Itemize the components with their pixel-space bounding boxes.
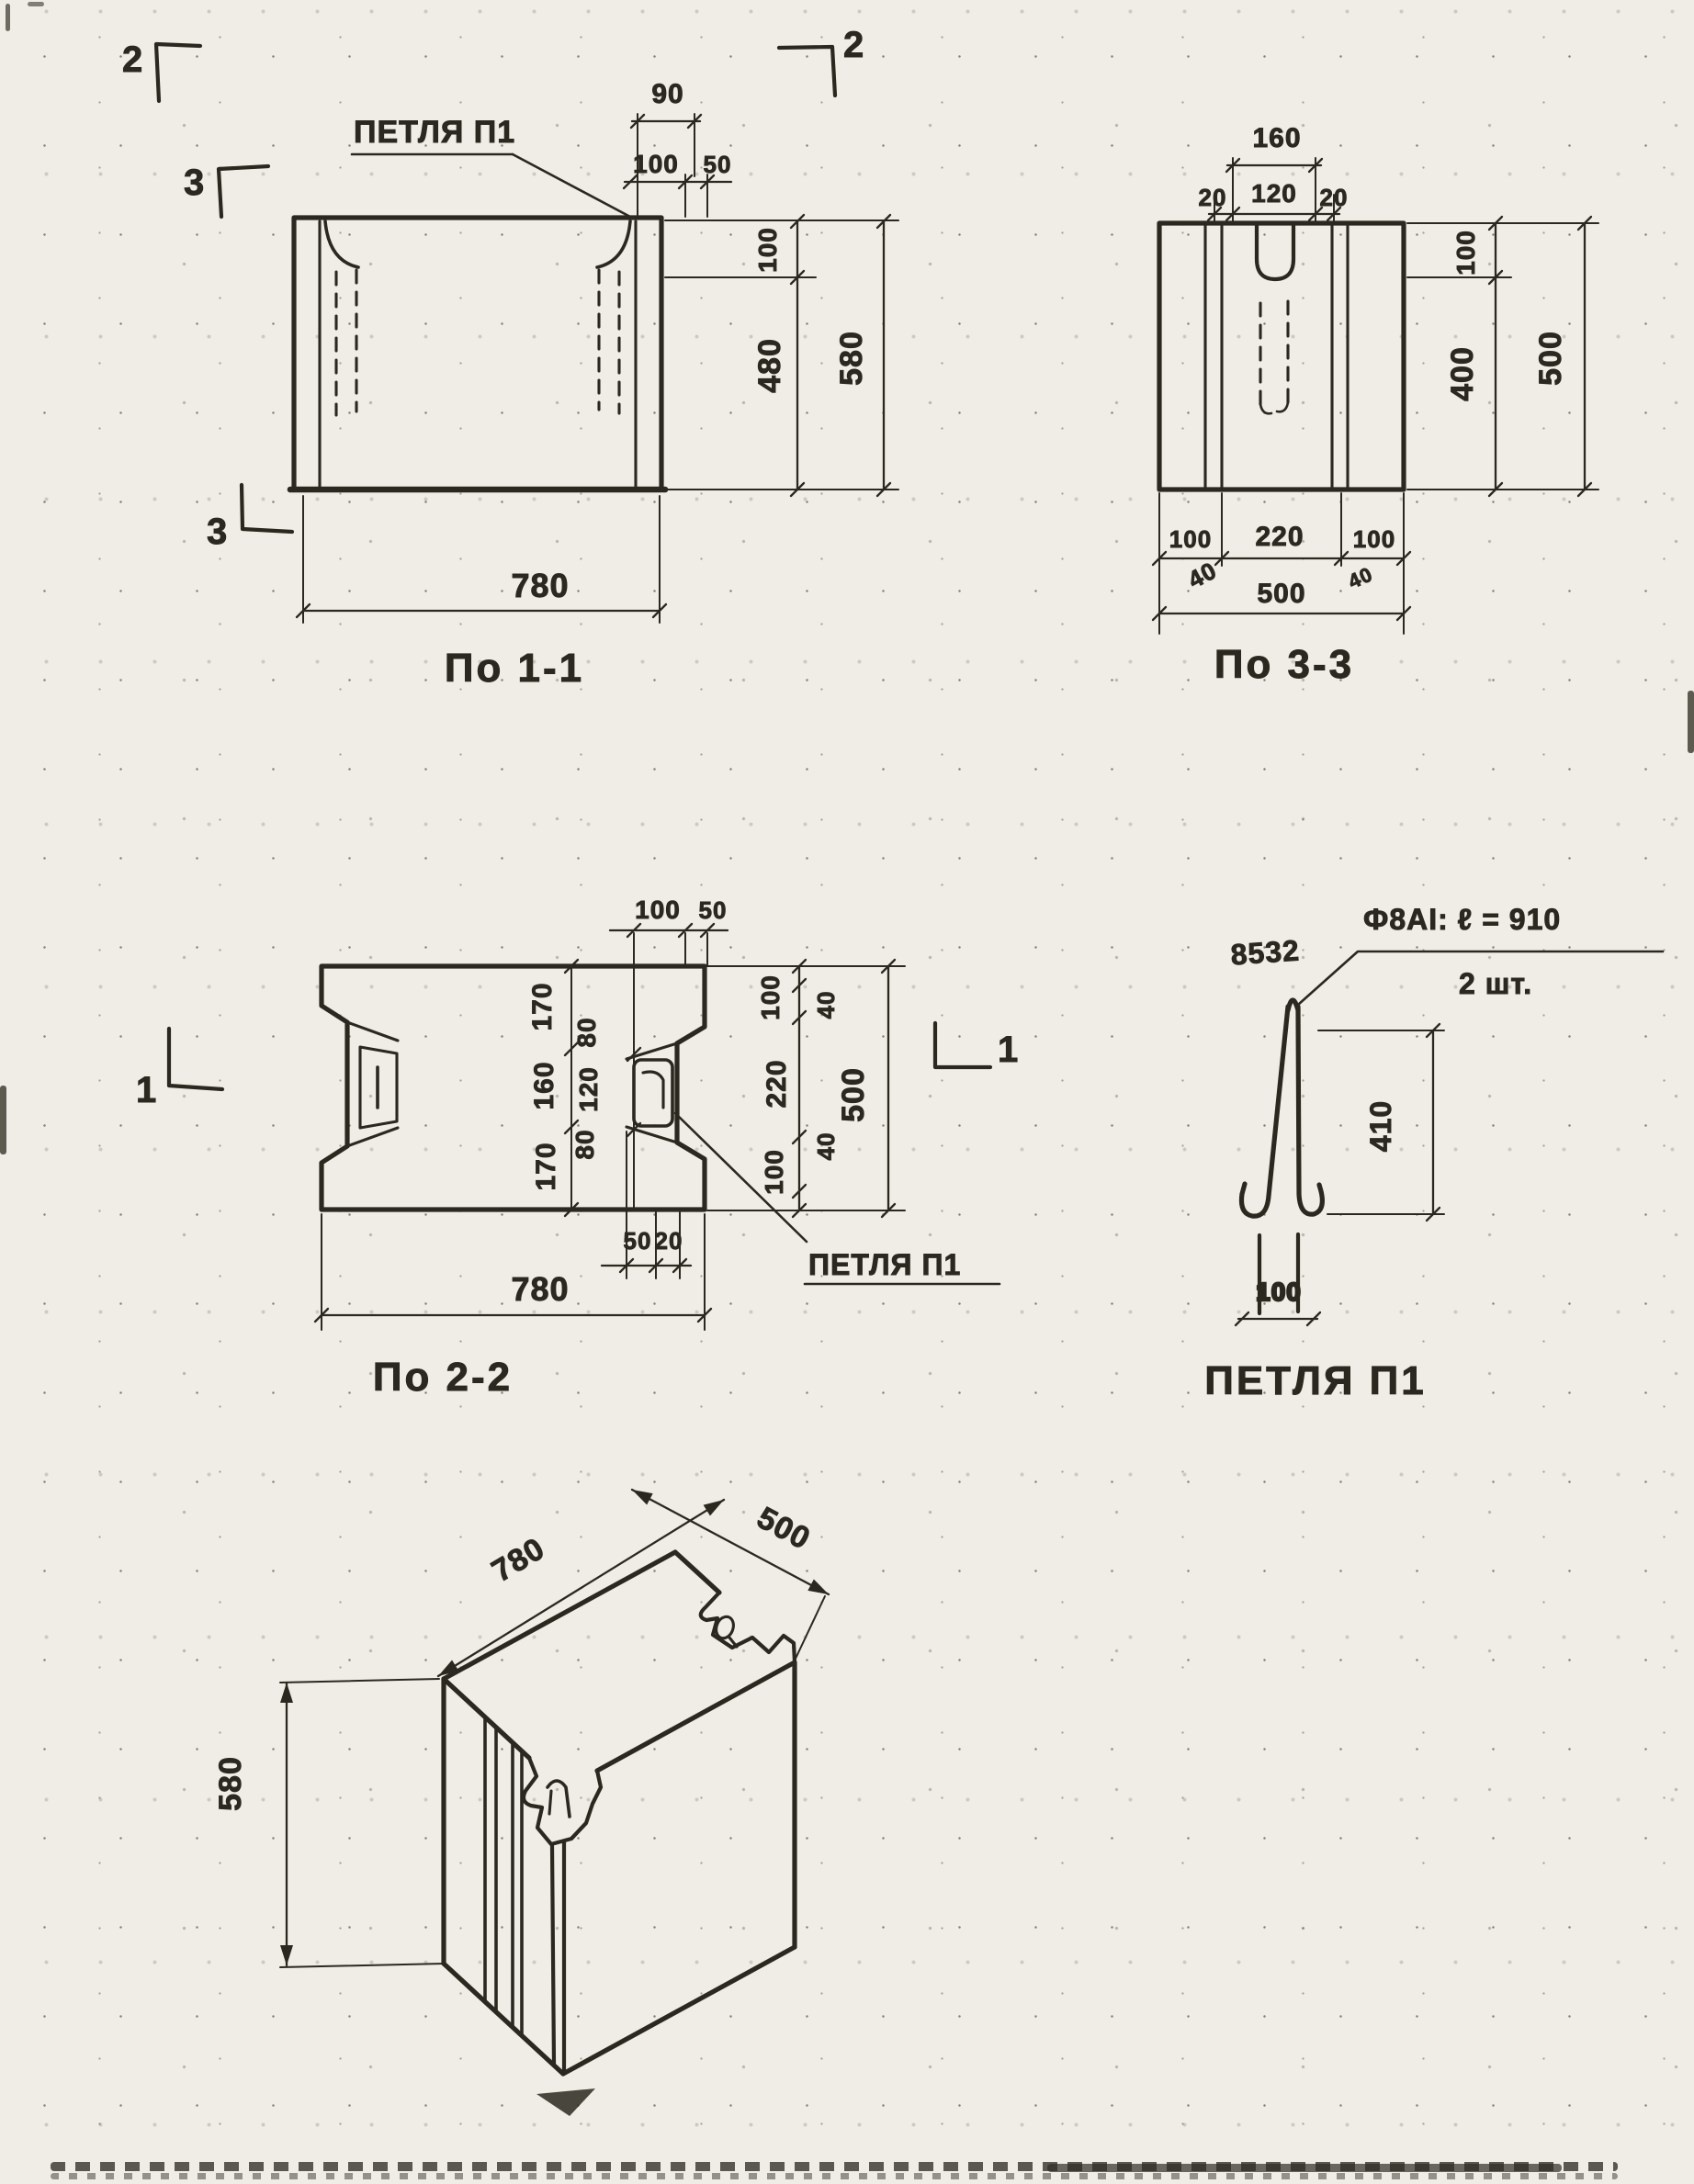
- bottom-dimension-line: [297, 496, 666, 623]
- left-keyway-recess: [347, 1022, 398, 1146]
- embedded-loop-bends: [325, 221, 630, 267]
- view-title: По 2-2: [373, 1355, 513, 1400]
- dim-160: 160: [529, 1061, 559, 1109]
- view-po-3-3: 160 20 120 20 100 400 500: [1153, 123, 1598, 687]
- width-dimension-line: [435, 1494, 727, 1682]
- dim-90: 90: [651, 79, 683, 109]
- section-mark-1-right: 1: [935, 1023, 1019, 1070]
- svg-text:3: 3: [207, 512, 228, 552]
- rebar-note-line2: 2 шт.: [1459, 967, 1532, 1000]
- dim-500-bottom: 500: [1257, 579, 1305, 609]
- section-mark-1-left: 1: [136, 1029, 222, 1110]
- view-title: По 3-3: [1214, 642, 1354, 687]
- groove-lines: [1205, 225, 1348, 488]
- svg-text:2: 2: [843, 25, 864, 65]
- loop-top-bend: [1288, 1000, 1298, 1010]
- section-mark-2-top-right: 2: [779, 25, 864, 96]
- loop-callout-leader: [352, 154, 630, 217]
- dim-220: 220: [1255, 522, 1304, 552]
- block-outline: [1159, 223, 1404, 490]
- dim-20-bottom: 20: [655, 1227, 683, 1255]
- bottom-dimension-lines: [1153, 493, 1410, 634]
- view-po-1-1: ПЕТЛЯ П1 90 100 50: [122, 25, 898, 691]
- dim-100-top: 100: [633, 150, 679, 178]
- svg-text:1: 1: [998, 1030, 1019, 1070]
- section-mark-3-left: 3: [184, 163, 268, 217]
- dim-40-ra: 40: [812, 991, 840, 1019]
- top-dimension-line: [610, 924, 728, 966]
- lifting-loop-u: [1257, 224, 1293, 279]
- shadow-blob: [536, 2088, 595, 2116]
- loop-callout-label: ПЕТЛЯ П1: [808, 1248, 961, 1281]
- scan-noise-band-2: [51, 2173, 1618, 2179]
- notch-dimension-line: [602, 1131, 691, 1278]
- scan-noise-band-3: [1047, 2164, 1562, 2172]
- svg-text:1: 1: [136, 1070, 157, 1110]
- scan-smudge-top-left: [6, 4, 10, 31]
- dim-580: 580: [834, 331, 869, 386]
- scan-smudge-top-left2: [28, 2, 44, 6]
- section-mark-2-top-left: 2: [122, 39, 200, 101]
- dim-100-rb: 100: [760, 1149, 788, 1195]
- dim-120: 120: [574, 1066, 603, 1112]
- dim-50-top: 50: [699, 896, 728, 924]
- isometric-view: 780 500 580: [213, 1484, 831, 2116]
- dim-410: 410: [1364, 1100, 1397, 1152]
- dim-100-ra: 100: [756, 974, 785, 1020]
- dim-40-rb: 40: [812, 1132, 840, 1161]
- dim-500: 500: [1533, 331, 1568, 386]
- right-dimension-lines: [1407, 217, 1598, 496]
- dim-220: 220: [762, 1059, 792, 1108]
- detail-title: ПЕТЛЯ П1: [1204, 1358, 1427, 1403]
- dim-20-right: 20: [1320, 184, 1349, 211]
- dim-170a: 170: [527, 982, 558, 1030]
- dim-780: 780: [511, 1270, 569, 1308]
- dim-780-iso: 780: [486, 1531, 551, 1589]
- loop-bend-mark: 8532: [1229, 933, 1301, 971]
- front-notch-with-loop: [524, 1758, 601, 1844]
- dim-20-left: 20: [1199, 184, 1227, 211]
- scan-smudge-left-edge: [0, 1086, 6, 1154]
- dim-580-iso: 580: [213, 1756, 248, 1811]
- dim-500: 500: [836, 1067, 871, 1122]
- dim-40-br: 40: [1345, 562, 1376, 593]
- dim-170b: 170: [531, 1142, 561, 1190]
- front-vertical-grooves: [485, 1717, 564, 2070]
- dim-120: 120: [1251, 179, 1297, 208]
- dim-100-top: 100: [635, 895, 681, 924]
- svg-text:3: 3: [184, 163, 205, 203]
- height-dimension-line: [280, 1679, 444, 1967]
- dim-500-iso: 500: [751, 1500, 817, 1557]
- loop-callout-label: ПЕТЛЯ П1: [354, 115, 515, 150]
- view-title: По 1-1: [445, 646, 584, 691]
- dim-50-top: 50: [704, 151, 732, 178]
- detail-loop-p1: 8532 Ф8АI: ℓ = 910 2 шт. 410 100 ПЕТЛЯ П…: [1204, 903, 1663, 1403]
- dim-100-br: 100: [1353, 525, 1395, 553]
- right-dimension-lines: [707, 960, 905, 1217]
- view-po-2-2: ПЕТЛЯ П1 170 160 170 80 120 80 100 50: [136, 895, 1019, 1400]
- dim-100-right: 100: [753, 227, 782, 273]
- dim-160: 160: [1252, 123, 1301, 153]
- loop-wire-left: [1241, 1007, 1288, 1216]
- hidden-loop-legs: [336, 270, 619, 415]
- dim-100-width: 100: [1256, 1278, 1302, 1306]
- dim-100-bl: 100: [1169, 525, 1212, 553]
- dim-80a: 80: [572, 1017, 601, 1047]
- loop-wire-right: [1298, 1007, 1322, 1214]
- dim-780: 780: [511, 567, 569, 604]
- groove-lines: [320, 221, 636, 487]
- block-outline: [294, 218, 661, 490]
- dim-80b: 80: [570, 1129, 599, 1159]
- section-mark-3-bottom-left: 3: [207, 485, 292, 552]
- dim-50-bottom: 50: [624, 1227, 652, 1255]
- scanned-drawing-page: ПЕТЛЯ П1 90 100 50: [0, 0, 1694, 2184]
- dim-100-right: 100: [1451, 230, 1480, 276]
- hidden-loop-legs: [1260, 301, 1288, 413]
- dim-400: 400: [1445, 346, 1480, 401]
- dim-40-bl: 40: [1183, 557, 1221, 594]
- dim-480: 480: [752, 338, 787, 393]
- scan-smudge-right-edge: [1688, 691, 1694, 753]
- top-notch-with-loop: [701, 1593, 795, 1662]
- rebar-note-line1: Ф8АI: ℓ = 910: [1363, 903, 1561, 936]
- svg-text:2: 2: [122, 39, 143, 80]
